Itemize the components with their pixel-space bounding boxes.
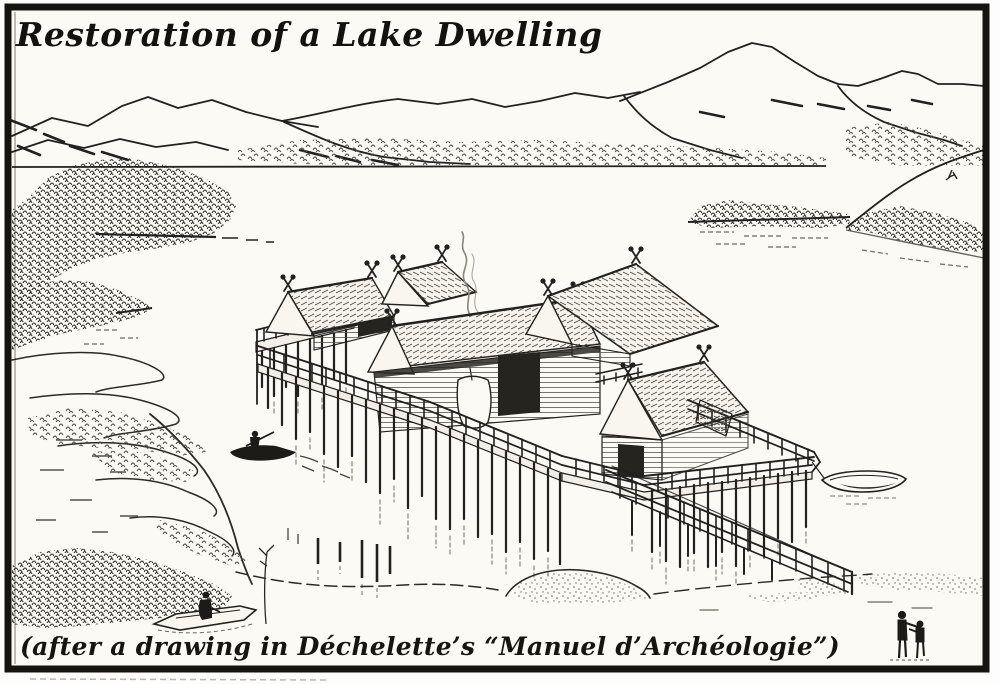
- seated-figure: [203, 592, 210, 599]
- hut-doorway: [498, 352, 540, 416]
- illustration-caption: (after a drawing in Déchelette’s “Manuel…: [20, 632, 840, 661]
- illustration-title: Restoration of a Lake Dwelling: [15, 15, 603, 54]
- book-plate: Restoration of a Lake Dwelling (after a …: [0, 0, 1000, 684]
- page-artifact-line: [30, 679, 330, 680]
- lake-dwelling-illustration: Restoration of a Lake Dwelling (after a …: [0, 0, 1000, 684]
